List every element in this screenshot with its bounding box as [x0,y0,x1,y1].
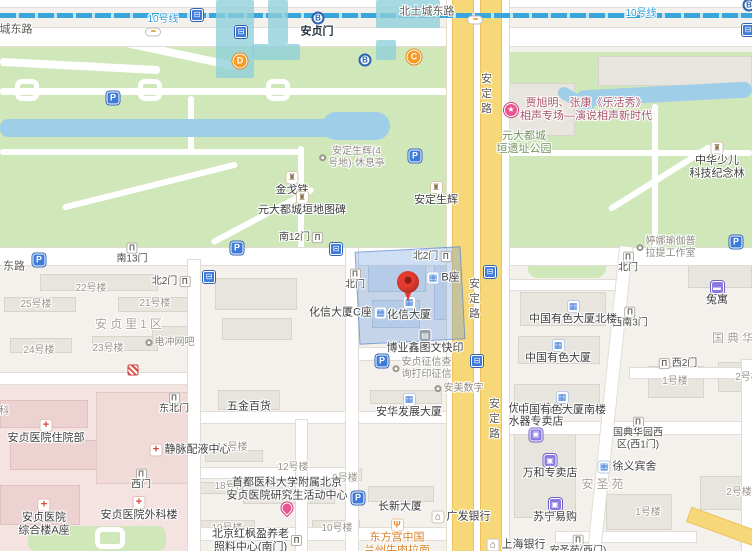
bluebldg-icon: ▦ [567,300,580,313]
monument-glyph: ♜ [298,193,306,202]
gate-label[interactable]: Π西南3门 [612,307,648,330]
gate-label-text: 北门 [345,280,365,292]
dot-icon [146,339,153,346]
poi-label-text: 安贞医院外科楼 [101,509,178,522]
poi-label-text: 安定生辉 [414,194,458,207]
hotel-glyph: ▬ [713,284,721,292]
park-name-label-text: 元大都城垣遗址公园 [497,130,552,156]
bus-icon[interactable]: ⊟ [330,243,342,255]
road-label: 东路 [3,261,25,274]
label-line: 广发银行 [447,511,491,524]
gate-glyph: Π [443,253,449,261]
building-label: 1号楼 [635,507,661,519]
bluebldg-glyph: ▦ [554,341,563,350]
road-label-text: 城东路 [0,24,33,37]
label-line: 询打印征信 [402,369,452,381]
label-line: 首都医科大学附属北京 [227,477,348,490]
road-label-text: 安定路 [487,398,500,443]
label-line: 兔寓 [706,294,728,307]
poi-label[interactable]: 长新大厦 [378,501,422,514]
bus-icon[interactable]: ⊟ [484,266,496,278]
building-label: 22号楼 [75,283,106,295]
parking-icon[interactable]: P [33,254,46,267]
poi-label[interactable]: ▦徐义宾舍 [598,461,657,474]
gate-icon: Π [127,243,138,254]
label-line: 元大都城垣地图碑 [258,204,346,217]
gate-icon: Π [623,252,634,263]
label-line: 北门 [345,280,365,292]
gate-glyph: Π [352,270,358,278]
label-line: 10号线 [147,14,178,26]
gate-label-text: 西南3门 [612,318,648,330]
gate-label[interactable]: Π国典华园西区(西1门) [613,417,663,452]
label-line: 25号楼 [20,299,51,311]
label-line: 婷娜瑜伽普 [646,236,696,248]
monument-glyph: ♜ [432,183,440,192]
gate-label-text: 北2门 [413,251,439,263]
gate-label[interactable]: Π西门 [131,469,151,492]
label-layer: 城东路北土城东路10号线10号线安贞门DC东路安定路安定路安定路安贞里1区安圣苑… [0,0,752,551]
station-label[interactable]: 安贞门 [301,26,334,39]
event-icon: ★ [504,103,518,117]
dot-icon [637,245,644,252]
print-glyph: ▤ [421,332,429,340]
poi-label[interactable]: ▬兔寓 [706,281,728,307]
traffic-glyph: ••• [151,29,155,36]
gate-label-text: 东北门 [159,404,189,416]
parking-icon[interactable]: P [376,355,389,368]
area-label: 国典华园 [712,331,752,345]
poi-label-text: 长新大厦 [378,501,422,514]
poi-label[interactable]: ▤博业鑫图文快印 [387,329,464,355]
building-label: 25号楼 [20,299,51,311]
poi-label[interactable]: ▦化信大厦C座 [309,307,387,320]
poi-label-text: 静脉配液中心 [165,444,231,457]
building-label-text: 1号楼 [635,507,661,519]
poi-label[interactable]: 电冲网吧 [146,337,195,349]
gate-label-text: 西2门 [672,358,698,370]
label-line: 安定生辉(4 [328,146,385,158]
bluebldg-glyph: ▦ [376,309,385,318]
poi-label[interactable]: +安贞医院外科楼 [101,496,178,522]
station-exit[interactable]: C [407,50,422,65]
label-line: 兰州牛肉拉面 [364,545,430,551]
monument-icon: ♜ [296,191,309,204]
road-label-text: 北土城东路 [400,6,455,19]
parking-icon[interactable]: P [231,242,244,255]
building-label: 10号楼 [321,523,352,535]
metro-icon[interactable]: B [359,54,372,67]
gate-label-text: 安圣苑(西门) [550,546,607,551]
shop-icon: ▣ [549,498,562,511]
gate-icon: Π [572,535,583,546]
bus-glyph: ⊟ [238,28,245,36]
redcross-icon: + [38,499,51,512]
label-line: 1号楼 [662,376,688,388]
poi-label[interactable]: +静脉配液中心 [150,444,231,457]
label-line: 中华少儿 [690,155,745,168]
label-line: 电冲网吧 [155,337,195,349]
poi-label-text: 化信大厦C座 [309,307,372,320]
bank-glyph: ⌂ [435,512,441,522]
print-icon: ▤ [419,329,432,342]
poi-label[interactable]: ▦安华发展大厦 [376,393,442,419]
gate-label[interactable]: Π北2门 [413,251,452,263]
poi-label-text: 安贞医院综合楼A座 [18,512,69,538]
label-line: 北2门 [413,251,439,263]
building-label: 24号楼 [23,345,54,357]
pin-head [397,271,419,293]
transit-line-label-text: 10号线 [147,14,178,26]
poi-label-text: 电冲网吧 [155,337,195,349]
label-line: 中国有色大厦北楼 [529,313,617,326]
gate-label-text: 北门 [618,263,638,275]
building-label-text: 2号楼 [726,487,752,499]
area-label: 安圣苑 [581,477,626,491]
label-line: 西南3门 [612,318,648,330]
label-line: 安圣苑 [581,477,626,491]
poi-label[interactable]: ♜安定生辉 [414,181,458,207]
poi-label[interactable]: ▦B座 [426,272,459,285]
bluebldg-icon: ▦ [374,307,387,320]
bank-glyph: ⌂ [490,540,496,550]
label-line: 科 [0,406,9,418]
redcross-icon: + [40,419,53,432]
label-line: 安定路 [467,278,480,323]
bluebldg-glyph: ▦ [558,393,567,402]
gate-glyph: Π [625,253,631,261]
gate-label-text: 南12门 [279,232,310,244]
dot-icon [435,385,442,392]
building-label-text: 21号楼 [139,298,170,310]
building-label-text: 23号楼 [92,343,123,355]
label-line: 国典华园西 [613,428,663,440]
gate-icon: Π [169,393,180,404]
gate-glyph: Π [661,360,667,368]
label-line: 1号楼 [635,507,661,519]
poi-label[interactable]: 科 [0,406,9,418]
poi-label-text: 万和专卖店 [523,467,578,480]
gate-icon: Π [179,276,190,287]
gate-label[interactable]: Π北门 [345,269,365,292]
label-line: 元大都城 [497,130,552,143]
label-line: 10号楼 [321,523,352,535]
metro-icon[interactable]: B [743,0,752,12]
building-label: 2号楼 [735,372,752,384]
parking-icon[interactable]: P [352,492,365,505]
bluebldg-icon: ▦ [556,391,569,404]
transit-line-label: 10号线 [625,8,656,20]
parking-icon[interactable]: P [730,236,743,249]
label-line: 安贞里1区 [95,317,165,331]
poi-label-text: 婷娜瑜伽普拉提工作室 [646,236,696,260]
label-line: 水器专卖店 [509,416,564,429]
gate-glyph: Π [294,537,300,545]
label-line: 中国有色大厦南楼 [518,404,606,417]
parking-icon[interactable]: P [409,150,422,163]
bus-glyph: ⊟ [333,245,340,253]
transit-line-label-text: 10号线 [625,8,656,20]
label-line: 安贞征信查 [402,357,452,369]
poi-label-text: 安定生辉(4号地)-休息亭 [328,146,385,170]
poi-label[interactable]: +安贞医院住院部 [8,419,85,445]
gate-label[interactable]: Π北门 [618,252,638,275]
area-label-text: 国典华园 [712,331,752,345]
gate-icon: Π [659,358,670,369]
parking-glyph: P [733,238,739,247]
poi-label-text: 苏宁易购 [533,511,577,524]
label-line: 安贞医院 [18,512,69,525]
station-label-text: 安贞门 [301,26,334,39]
poi-label[interactable]: 五金百货 [227,401,271,414]
gate-label[interactable]: Π北2门 [152,276,191,288]
parking-glyph: P [36,256,42,265]
poi-label-text: 东方宫中国兰州牛肉拉面 [364,532,430,551]
bus-icon[interactable]: ⊟ [471,355,483,367]
traffic-icon[interactable]: ••• [145,28,161,37]
label-line: 垣遗址公园 [497,143,552,156]
shop-glyph: ▣ [546,457,554,465]
label-line: 北土城东路 [400,6,455,19]
poi-label[interactable]: Π北京红枫盈养老照料中心(南门) [212,528,302,551]
poi-label[interactable]: 安贞征信查询打印征信 [393,357,452,381]
label-line: 10号线 [625,8,656,20]
poi-label[interactable]: ▦中国有色大厦 [525,339,591,365]
hospitalgate-icon[interactable] [128,365,139,376]
bank-icon: ⌂ [487,539,500,551]
poi-label-text: 广发银行 [447,511,491,524]
gate-glyph: Π [129,244,135,252]
poi-label[interactable]: ♜元大都城垣地图碑 [258,191,346,217]
label-line: C [408,51,421,64]
gate-glyph: Π [171,394,177,402]
label-line: 24号楼 [23,345,54,357]
label-line: 综合楼A座 [18,525,69,538]
gate-label[interactable]: Π南12门 [279,232,323,244]
monument-icon: ♜ [711,142,724,155]
poi-label-text: 安美数字 [444,383,484,395]
bluebldg-icon: ▦ [598,461,611,474]
shop-icon: ▣ [544,454,557,467]
event-label-text: 贾旭明、张康《乐活秀》相声专场—演说相声新时代 [520,97,652,123]
label-line: 号地)-休息亭 [328,158,385,170]
label-line: 安美数字 [444,383,484,395]
hotel-icon: ▬ [711,281,724,294]
gate-label[interactable]: Π西2门 [659,358,698,370]
bluebldg-glyph: ▦ [569,302,578,311]
building-label-text: 10号楼 [321,523,352,535]
label-line: 安圣苑(西门) [550,546,607,551]
parking-icon[interactable]: P [107,92,120,105]
poi-label[interactable]: ▦中国有色大厦北楼 [529,300,617,326]
gate-glyph: Π [627,308,633,316]
gate-glyph: Π [182,278,188,286]
label-line: 北2门 [152,276,178,288]
building-label: 21号楼 [139,298,170,310]
poi-label[interactable]: ⌂上海银行 [487,539,546,551]
poi-label-text: 化信大厦 [387,309,431,322]
bluebldg-glyph: ▦ [600,463,609,472]
bus-icon[interactable]: ⊟ [742,24,752,36]
station-exit-text: D [233,54,248,69]
label-line: 21号楼 [139,298,170,310]
building-label-text: 12号楼 [277,462,308,474]
poi-label[interactable]: ▣苏宁易购 [533,498,577,524]
rest-icon: Ψ [391,519,404,532]
gate-label-text: 南13门 [116,254,147,266]
label-line: 东方宫中国 [364,532,430,545]
traffic-icon[interactable]: ••• [467,16,483,25]
poi-label-text: 科 [0,406,9,418]
label-line: 安贞医院住院部 [8,432,85,445]
map-canvas[interactable]: 城东路北土城东路10号线10号线安贞门DC东路安定路安定路安定路安贞里1区安圣苑… [0,0,752,551]
poi-label-text: 中国有色大厦南楼 [518,404,606,417]
label-line: 23号楼 [92,343,123,355]
building-label: 1号楼 [662,376,688,388]
event-glyph: ★ [507,106,514,114]
label-line: 万和专卖店 [523,467,578,480]
redcross-icon: + [133,496,146,509]
label-line: 西2门 [672,358,698,370]
road-label-text: 安定路 [467,278,480,323]
building-label-text: 1号楼 [662,376,688,388]
road-label-text: 安定路 [479,73,492,118]
redcross-glyph: + [153,444,159,455]
poi-label-text: 中国有色大厦北楼 [529,313,617,326]
gate-icon: Π [633,417,644,428]
poi-label[interactable]: 婷娜瑜伽普拉提工作室 [637,236,696,260]
rest-glyph: Ψ [393,521,400,530]
bluebldg-icon: ▦ [552,339,565,352]
gate-glyph: Π [138,470,144,478]
label-line: 相声专场—演说相声新时代 [520,110,652,123]
metro-icon[interactable]: B [312,12,325,25]
label-line: 苏宁易购 [533,511,577,524]
label-line: 静脉配液中心 [165,444,231,457]
dot-icon [393,366,400,373]
label-line: 化信大厦 [387,309,431,322]
poi-label-text: 徐义宾舍 [613,461,657,474]
label-line: 博业鑫图文快印 [387,342,464,355]
gate-icon: Π [136,469,147,480]
building-label-text: 22号楼 [75,283,106,295]
poi-label[interactable]: ⌂广发银行 [432,511,491,524]
traffic-glyph: ••• [473,17,477,24]
poi-label[interactable]: Ψ东方宫中国兰州牛肉拉面 [364,519,430,551]
poi-label-text: 安贞征信查询打印征信 [402,357,452,381]
park-name-label[interactable]: 元大都城垣遗址公园 [497,130,552,156]
shop-icon: ▣ [530,428,543,441]
dot-icon [319,155,326,162]
poi-label[interactable]: +安贞医院综合楼A座 [18,499,69,538]
bus-glyph: ⊟ [474,357,481,365]
bluebldg-glyph: ▦ [429,274,438,283]
label-line: 12号楼 [277,462,308,474]
area-label: 安贞里1区 [95,317,165,331]
road-label: 安定路 [467,278,480,323]
gate-label[interactable]: Π安圣苑(西门) [550,535,607,551]
gate-label-text: 西门 [131,480,151,492]
area-label-text: 安圣苑 [581,477,626,491]
metro-glyph: B [362,56,368,64]
label-line: 南12门 [279,232,310,244]
gate-glyph: Π [635,418,641,426]
label-line: 东路 [3,261,25,274]
label-line: 安贞医院外科楼 [101,509,178,522]
shop-glyph: ▣ [532,431,540,439]
gate-label[interactable]: Π南13门 [116,243,147,266]
bus-icon[interactable]: ⊟ [191,9,203,21]
poi-label[interactable]: 首都医科大学附属北京安贞医院研究生活动中心 [227,477,348,514]
event-label[interactable]: ★贾旭明、张康《乐活秀》相声专场—演说相声新时代 [504,97,652,123]
building-label: 2号楼 [726,487,752,499]
gate-icon: Π [440,251,451,262]
poi-label-text: 五金百货 [227,401,271,414]
poi-label-text: 中华少儿科技纪念林 [690,155,745,181]
redcross-glyph: + [136,497,142,508]
label-line: 北京红枫盈养老 [212,528,289,541]
poi-label-text: 安贞医院住院部 [8,432,85,445]
area-label-text: 安贞里1区 [95,317,165,331]
building-label: 12号楼 [277,462,308,474]
parking-glyph: P [234,244,240,253]
bus-glyph: ⊟ [194,11,201,19]
label-line: 拉提工作室 [646,248,696,260]
redcross-glyph: + [43,420,49,431]
station-exit-text: C [407,50,422,65]
monument-icon: ♜ [286,171,299,184]
label-line: 2号楼 [735,372,752,384]
building-label-text: 24号楼 [23,345,54,357]
gate-icon: Π [312,232,323,243]
bus-icon[interactable]: ⊟ [235,26,247,38]
label-line: 安定路 [487,398,500,443]
label-line: 徐义宾舍 [613,461,657,474]
poi-label[interactable]: ▦中国有色大厦南楼 [518,391,606,417]
building-label: 23号楼 [92,343,123,355]
label-line: 长新大厦 [378,501,422,514]
gate-label-text: 北2门 [152,276,178,288]
label-line: 照料中心(南门) [212,541,289,551]
poi-label-text: 中国有色大厦 [525,352,591,365]
gate-label[interactable]: Π东北门 [159,393,189,416]
bus-icon[interactable]: ⊟ [203,271,215,283]
poi-label-text: B座 [441,272,459,285]
gate-icon: Π [625,307,636,318]
parking-glyph: P [379,357,385,366]
monument-icon: ♜ [430,181,443,194]
poi-label-text: 北京红枫盈养老照料中心(南门) [212,528,289,551]
gate-icon: Π [350,269,361,280]
poi-label-text: 元大都城垣地图碑 [258,204,346,217]
poi-label-text: 兔寓 [706,294,728,307]
label-line: 北门 [618,263,638,275]
road-label: 安定路 [479,73,492,118]
gate-icon: Π [291,536,302,547]
poi-label-text: 首都医科大学附属北京安贞医院研究生活动中心 [227,477,348,503]
poi-label[interactable]: 安定生辉(4号地)-休息亭 [319,146,385,170]
label-line: 安贞医院研究生活动中心 [227,490,348,503]
road-label: 城东路 [0,24,33,37]
label-line: 化信大厦C座 [309,307,372,320]
shop-glyph: ▣ [551,501,559,509]
station-exit[interactable]: D [233,54,248,69]
bluebldg-icon: ▦ [426,272,439,285]
label-line: 安贞门 [301,26,334,39]
poi-label[interactable]: ♜中华少儿科技纪念林 [690,142,745,181]
label-line: B座 [441,272,459,285]
poi-label[interactable]: ▣万和专卖店 [523,454,578,480]
